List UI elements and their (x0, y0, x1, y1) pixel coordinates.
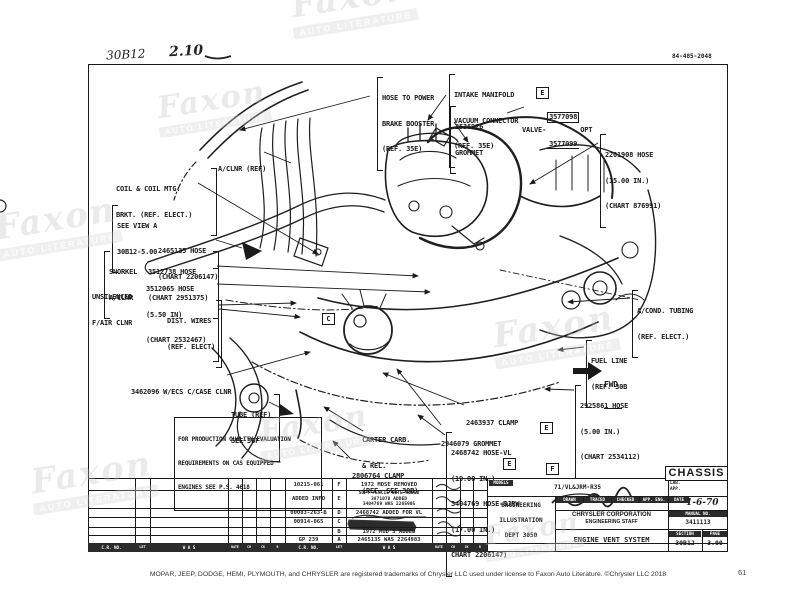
drawing-title: ENGINE VENT SYSTEM (555, 537, 668, 543)
label-crankcase-cleaner: 3462096 W/ECS C/CASE CLNR (131, 371, 231, 414)
row-line (88, 535, 487, 536)
view-marker-c: C (322, 313, 335, 325)
hdr-was-left: W A S (150, 543, 228, 552)
watermark-big-text: Faxon (287, 0, 416, 22)
tb-line (555, 529, 728, 530)
dept-line-1: ENGINEERING (487, 503, 555, 509)
watermark-small-text: AUTO LITERATURE (293, 8, 419, 40)
dept-line-2: ILLUSTRATION (487, 518, 555, 524)
hdr-ck-right: CK (460, 543, 473, 552)
section-value: 30B12 (668, 540, 702, 546)
rev-was-f: 1972 MDSE REMOVED (346, 482, 432, 488)
rev-let-d: D (332, 510, 346, 516)
view-marker-e1: E (536, 87, 549, 99)
chassis-box: CHASSIS (665, 466, 728, 481)
corp-staff: ENGINEERING STAFF (555, 519, 668, 525)
page-number: 61 (738, 568, 746, 577)
hdr-let-right: LET (332, 543, 346, 552)
hdr-r-left: R (270, 543, 285, 552)
handwritten-page-number: 2.10 (169, 42, 204, 60)
lab-app-label: LAB. APP. (670, 481, 690, 493)
rev-cr-e: ADDED INFO (285, 496, 332, 502)
col-line (150, 478, 151, 552)
corp-name: CHRYSLER CORPORATION (555, 512, 668, 519)
rev-let-c: C (332, 519, 346, 525)
sig-header-drawn: DRAWN (556, 497, 583, 503)
hdr-was-right: W A S (346, 543, 432, 552)
hdr-r-right: R (473, 543, 487, 552)
view-marker-e2: E (540, 422, 553, 434)
label-valve-3577098: VALVE- 3577098 3577099 OPT (522, 95, 592, 166)
col-line (432, 478, 433, 552)
hdr-ck-left: CK (256, 543, 270, 552)
rev-let-b: B (332, 529, 346, 535)
col-line (135, 478, 136, 552)
page-label: PAGE (703, 531, 727, 537)
section-label: SECTION (669, 531, 701, 537)
hdr-date-right: DATE (432, 543, 446, 552)
hdr-crno-right: C.R. NO. (285, 543, 332, 552)
rev-was-d: 2468742 ADDED FOR VL (346, 510, 432, 516)
dept-line-3: DEPT 3050 (487, 533, 555, 539)
hdr-date-left: DATE (228, 543, 242, 552)
page-value: 3.00 (702, 540, 728, 546)
rev-let-f: F (332, 482, 346, 488)
models-value: 71/VL&JRM-R35 (487, 485, 668, 491)
manual-no-label: MANUAL NO. (669, 511, 727, 517)
date-value: 1-6-70 (686, 498, 719, 508)
row-line (88, 517, 487, 518)
label-distributor-wires: DIST. WIRES (REF. ELECT) (167, 300, 222, 368)
faxon-watermark: Faxon AUTO LITERATURE (287, 0, 419, 41)
label-hose-2201908: 2201908 HOSE (15.00 IN.) (CHART 876991) (600, 134, 661, 228)
rev-was-b: 1972 MOD'S ADDED (346, 529, 432, 535)
label-ac-tubing: A/COND. TUBING (REF. ELECT.) (632, 290, 693, 358)
hdr-ch-left: CH (242, 543, 256, 552)
hdr-ch-right: CH (446, 543, 460, 552)
label-hose-2925861: 2925861 HOSE (5.00 IN.) (CHART 2534112) (575, 385, 640, 479)
row-line (88, 527, 487, 528)
label-unsilenced-air-cleaner: UNSILENCED F/AIR CLNR (92, 276, 132, 344)
rev-cr-f: 10215-061 (285, 482, 332, 488)
rev-was-e3: 3404769 WAS 2265905 (346, 502, 432, 508)
handwritten-section-number: 30B12 (106, 46, 146, 62)
scanned-sheet: 30B12 2.10 84-485-2048 (0, 0, 792, 612)
rev-cr-d: 00083-263-B (285, 510, 332, 516)
rev-let-e: E (332, 496, 346, 502)
view-marker-e3: E (503, 458, 516, 470)
sig-header-checked: CHECKED (612, 497, 639, 503)
document-number: 84-485-2048 (672, 53, 712, 60)
sig-header-app-eng: APP. ENG. (640, 497, 668, 503)
sig-header-traced: TRACED (584, 497, 611, 503)
view-marker-f: F (546, 463, 559, 475)
label-power-brake-hose: HOSE TO POWER BRAKE BOOSTER (REF. 35E) (377, 77, 434, 171)
hdr-crno-left: C.R. NO. (88, 543, 135, 552)
rev-cr-c: 00914-065 (285, 519, 332, 525)
label-grommet-2536926: 2536926 GROMMET (450, 106, 483, 174)
handwritten-header: 30B12 2.10 (106, 39, 204, 63)
trademark-notice: MOPAR, JEEP, DODGE, HEMI, PLYMOUTH, and … (130, 570, 686, 579)
label-air-cleaner-ref: A/CLNR (REF) (218, 148, 266, 191)
manual-no-value: 3411113 (668, 520, 728, 526)
hdr-let-left: LET (135, 543, 150, 552)
